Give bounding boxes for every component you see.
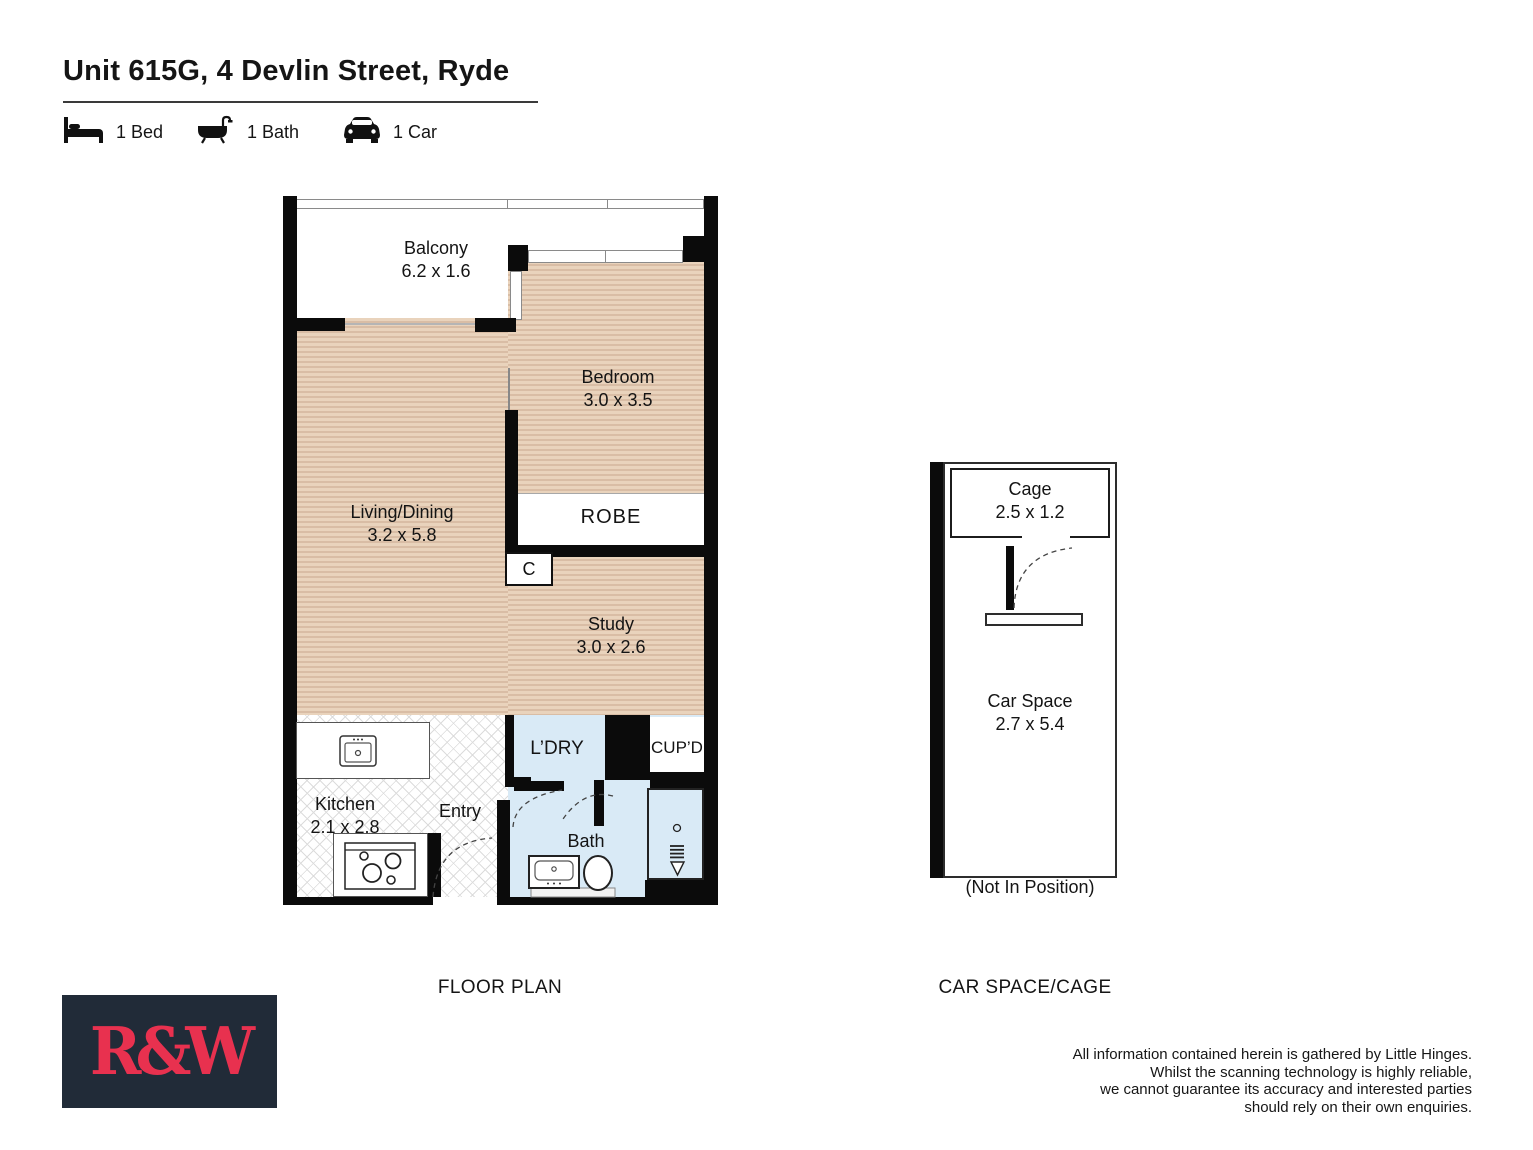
wall: [594, 780, 604, 826]
railing-divider: [507, 199, 508, 209]
wall: [505, 410, 518, 545]
bed-icon: [63, 116, 105, 149]
disclaimer-line: Whilst the scanning technology is highly…: [992, 1064, 1472, 1082]
study-label: Study3.0 x 2.6: [531, 613, 691, 659]
agency-logo: R&W: [62, 995, 277, 1108]
entry-label: Entry: [420, 800, 500, 823]
disclaimer: All information contained herein is gath…: [992, 1046, 1472, 1116]
kitchen-label: Kitchen2.1 x 2.8: [285, 793, 405, 839]
car-space-label: Car Space2.7 x 5.4: [943, 690, 1117, 736]
disclaimer-line: All information contained herein is gath…: [992, 1046, 1472, 1064]
wall-segment: [985, 613, 1083, 626]
bedroom-door-line: [508, 368, 510, 410]
disclaimer-line: we cannot guarantee its accuracy and int…: [992, 1081, 1472, 1099]
laundry-label: L’DRY: [511, 737, 603, 760]
bedroom-label: Bedroom3.0 x 3.5: [538, 366, 698, 412]
wall: [930, 462, 943, 878]
floor-plan: C: [283, 196, 718, 905]
cage-label: Cage2.5 x 1.2: [950, 478, 1110, 524]
shower: [647, 788, 704, 880]
balcony-railing: [296, 199, 704, 209]
kitchen-counter: [296, 722, 430, 779]
window-divider: [605, 251, 606, 262]
car-space-diagram: Cage2.5 x 1.2 Car Space2.7 x 5.4: [930, 462, 1118, 878]
page-title: Unit 615G, 4 Devlin Street, Ryde: [63, 55, 509, 88]
stove-counter: [333, 833, 428, 897]
living-dining-label: Living/Dining3.2 x 5.8: [322, 501, 482, 547]
bath-icon: [196, 115, 236, 150]
cupboard-label: CUP’D: [643, 736, 711, 759]
wall: [428, 833, 441, 897]
disclaimer-line: should rely on their own enquiries.: [992, 1099, 1472, 1117]
feature-cars: 1 Car: [342, 114, 437, 150]
feature-baths-label: 1 Bath: [247, 122, 299, 143]
sliding-door-track: [345, 323, 475, 325]
wall: [283, 897, 433, 905]
wall: [683, 236, 711, 262]
feature-baths: 1 Bath: [196, 114, 299, 150]
feature-beds: 1 Bed: [63, 114, 163, 150]
floor-plan-section-label: FLOOR PLAN: [380, 977, 620, 999]
feature-beds-label: 1 Bed: [116, 122, 163, 143]
wall: [645, 880, 704, 897]
robe-label: ROBE: [518, 506, 704, 529]
railing-divider: [607, 199, 608, 209]
closet-label: C: [523, 559, 536, 580]
balcony-label: Balcony6.2 x 1.6: [356, 237, 516, 283]
bath-label: Bath: [541, 830, 631, 853]
wall: [283, 318, 345, 331]
wall: [497, 897, 718, 905]
wall: [514, 781, 564, 791]
closet-box: C: [505, 552, 553, 586]
car-icon: [342, 116, 382, 149]
agency-logo-text: R&W: [90, 1013, 249, 1090]
not-in-position-note: (Not In Position): [910, 877, 1150, 898]
wall: [704, 196, 718, 905]
wall: [650, 772, 704, 788]
cage-door-panel: [1006, 546, 1014, 610]
feature-cars-label: 1 Car: [393, 122, 437, 143]
title-underline: [63, 101, 538, 103]
car-space-section-label: CAR SPACE/CAGE: [900, 977, 1150, 999]
wall: [475, 318, 516, 332]
cage-door-gap: [1022, 534, 1070, 539]
